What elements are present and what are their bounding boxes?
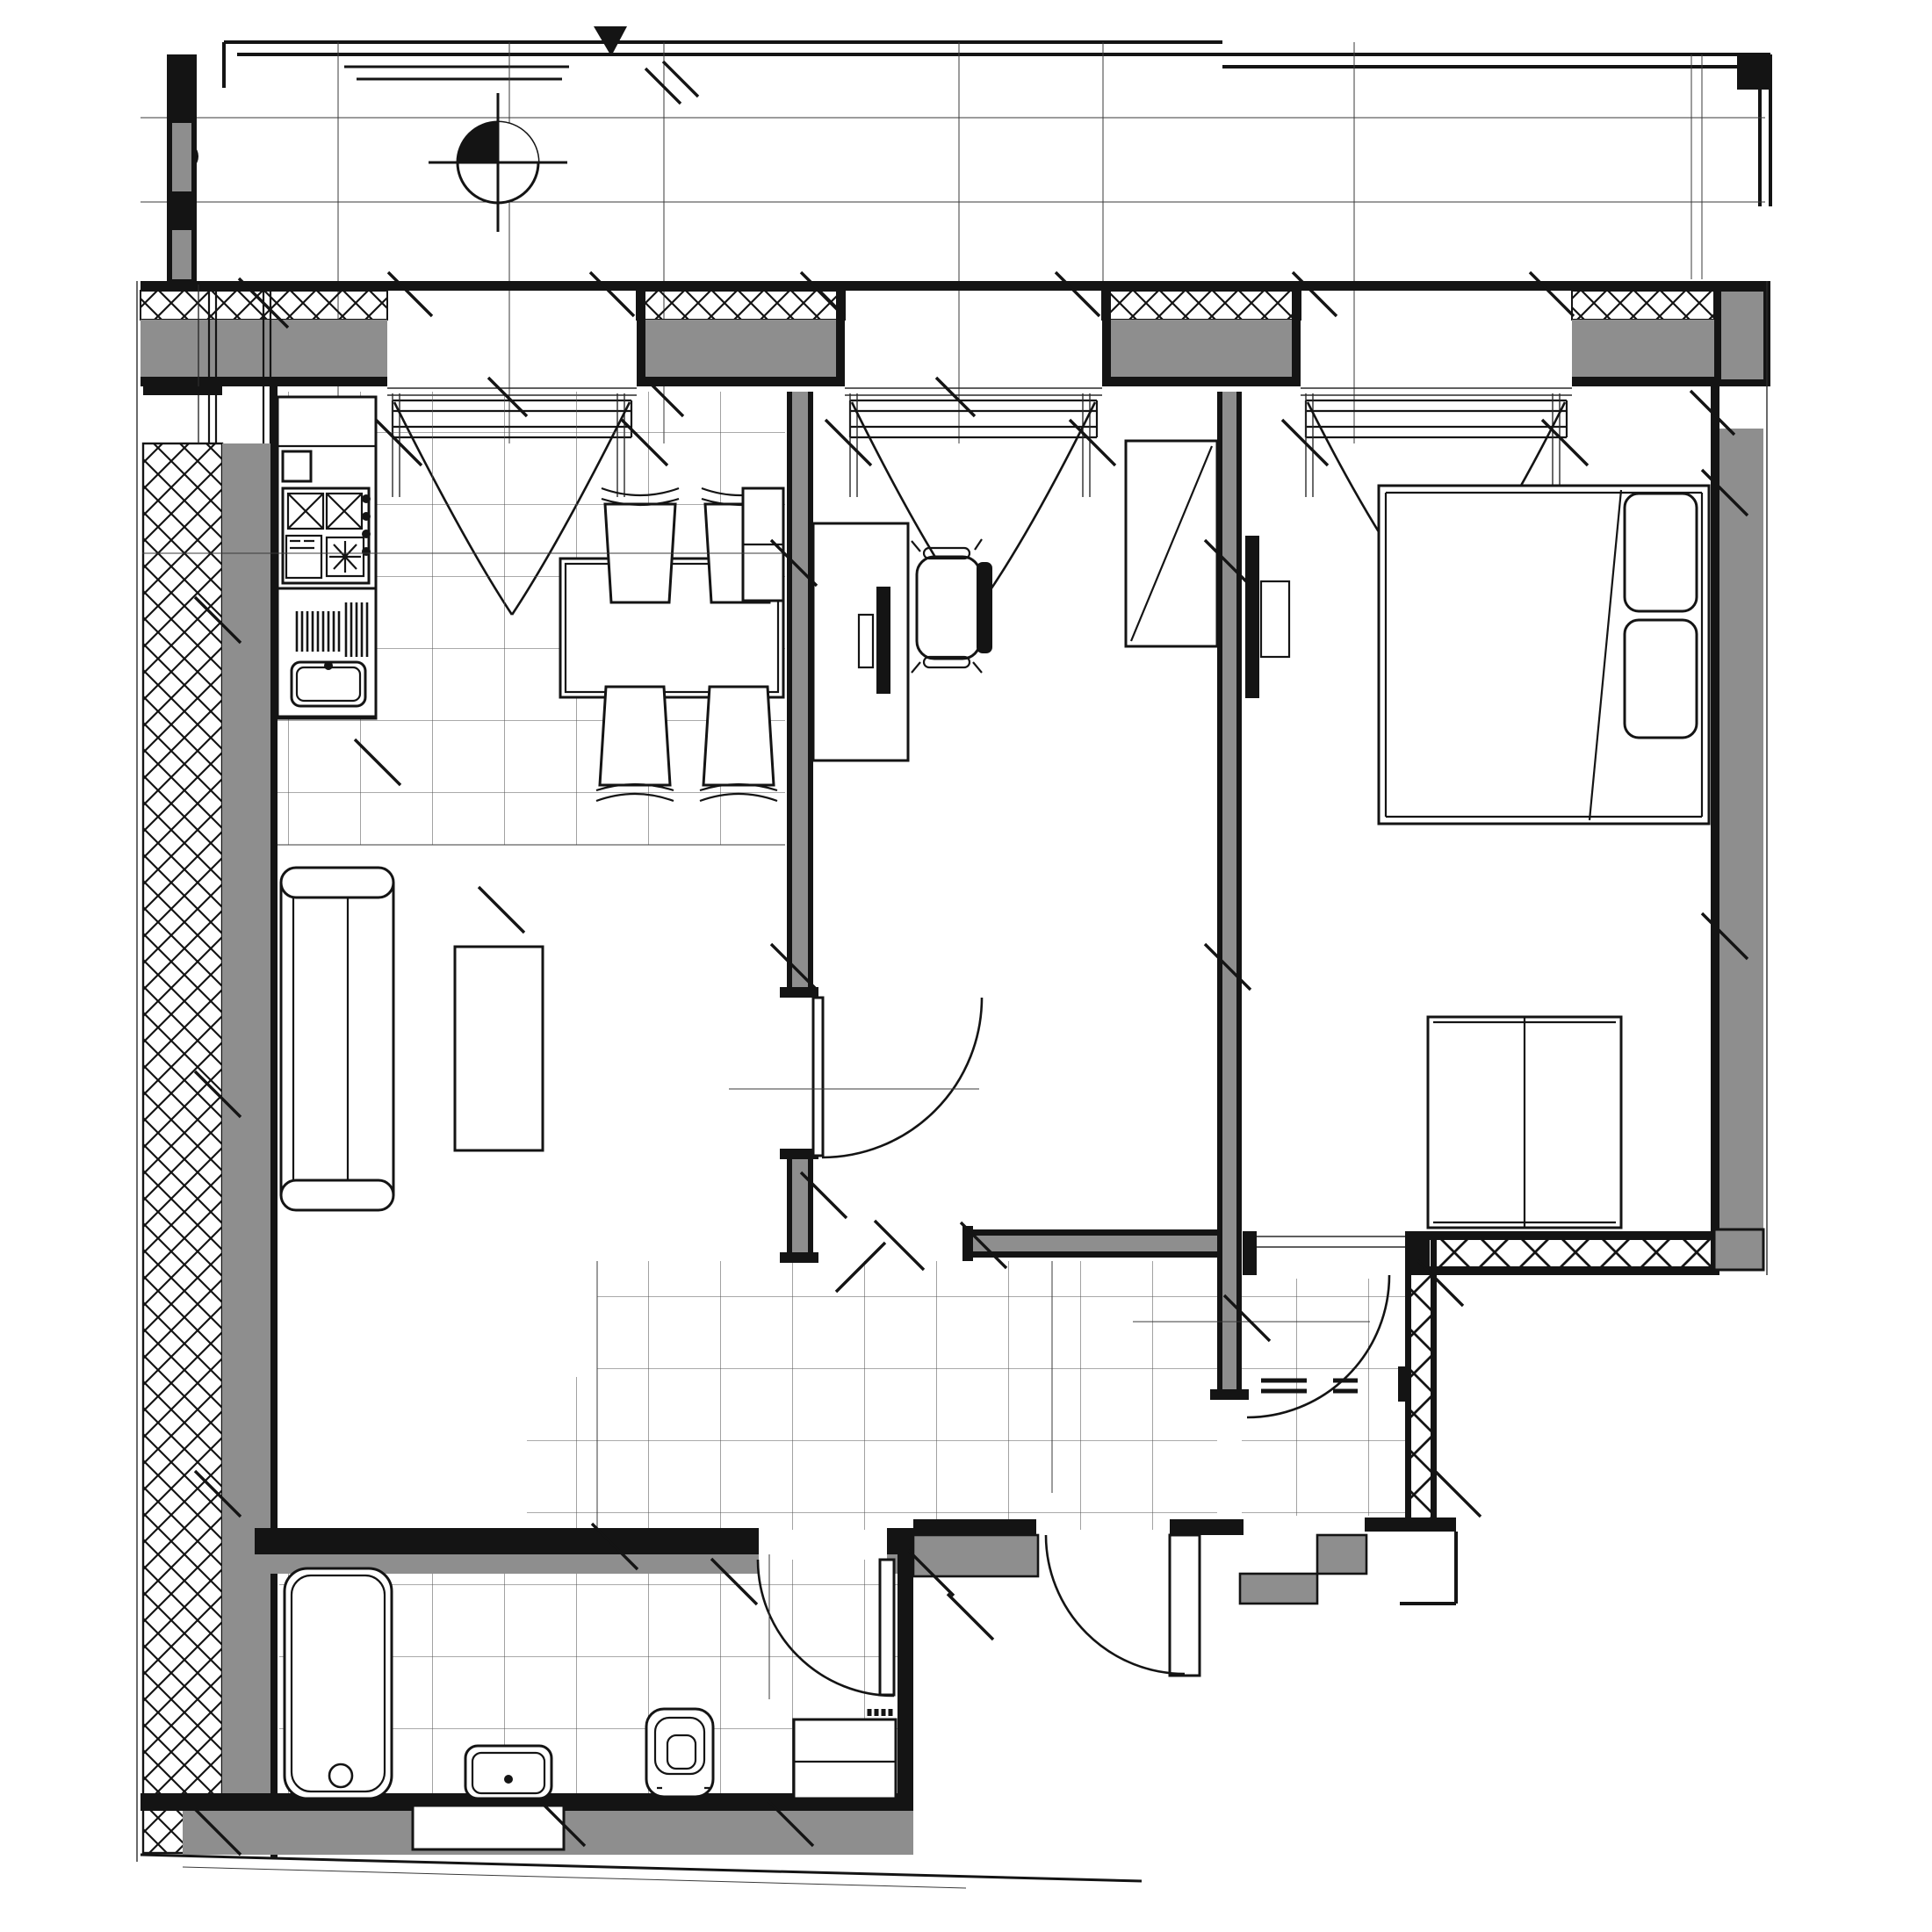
centroid-marker-symbol <box>429 93 567 232</box>
dining-chair <box>700 687 777 801</box>
coffee-table <box>455 947 543 1150</box>
monitor <box>876 587 890 694</box>
outside-entry-steps <box>1240 1532 1456 1604</box>
floor-plan-canvas <box>0 0 1932 1932</box>
dining-chair <box>602 488 679 602</box>
wall-pier-corner <box>1572 281 1770 386</box>
wall-pier-b <box>637 291 845 386</box>
study-cabinet <box>1126 441 1217 646</box>
faucet <box>324 661 333 670</box>
washbasin <box>465 1746 551 1799</box>
entry-door <box>1046 1535 1200 1676</box>
toilet <box>646 1709 713 1797</box>
pillow <box>1625 494 1697 611</box>
wardrobe <box>1428 1017 1621 1228</box>
wall-pier-c <box>1102 291 1301 386</box>
sofa <box>281 868 393 1210</box>
bed <box>1379 486 1709 824</box>
dining-chair <box>596 687 674 801</box>
office-chair <box>912 539 992 673</box>
desk <box>813 523 908 761</box>
pillow <box>1625 620 1697 738</box>
study-door <box>813 998 982 1157</box>
hall-top-wall <box>962 1226 1217 1261</box>
kitchen-sink <box>278 588 376 717</box>
cooktop-stove <box>283 488 371 583</box>
washing-machine <box>794 1709 896 1799</box>
bathtub <box>285 1568 392 1799</box>
chair-back <box>977 562 992 653</box>
tv-on-wall <box>1245 536 1289 698</box>
right-exterior-wall <box>1711 281 1767 1275</box>
wall-niche <box>413 1806 564 1849</box>
top-exterior-wall <box>141 281 1770 386</box>
floor-plan-drawing <box>0 0 1932 1932</box>
balcony-corner-post <box>1737 54 1772 90</box>
bedroom-bottom-wall <box>1243 1231 1714 1275</box>
